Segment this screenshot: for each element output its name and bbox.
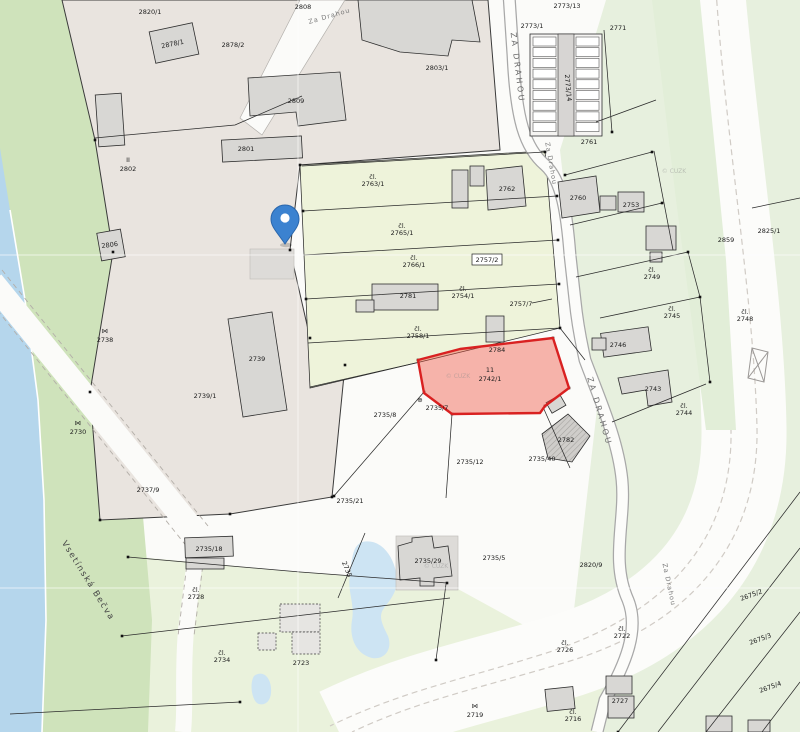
building [221, 136, 302, 162]
parcel-label: 2719 [467, 711, 484, 719]
parcel-label: 2773/13 [553, 2, 580, 10]
garage-cell [576, 123, 599, 132]
parcel-label: 2735/5 [483, 554, 506, 562]
parcel-label: 2784 [489, 346, 506, 354]
building-dashed [292, 632, 320, 654]
garage-cell [533, 37, 556, 46]
building [650, 252, 662, 262]
parcel-label: 2738 [97, 336, 114, 344]
parcel-label: II [126, 156, 130, 164]
parcel-label: 2757/7 [510, 300, 533, 308]
parcel-label: 2739/1 [194, 392, 217, 400]
parcel-label: 2730 [70, 428, 87, 436]
parcel-label: 2739 [249, 355, 266, 363]
building [592, 338, 606, 350]
cadastral-map-canvas[interactable]: 11 2742/1 2820/12878/12878/2280828092803… [0, 0, 800, 732]
parcel-label: 2762 [499, 185, 516, 193]
garage-cell [576, 48, 599, 57]
building-dashed [258, 633, 276, 650]
garage-cell [533, 69, 556, 78]
parcel-label: 2781 [400, 292, 417, 300]
parcel-label: 2746 [610, 341, 627, 349]
parcel-label: ⋈ [102, 327, 109, 335]
parcel-label: 2859 [718, 236, 735, 244]
parcel-label: 2820/1 [139, 8, 162, 16]
parcel-label: ⋈ [75, 419, 82, 427]
building-dashed [280, 604, 320, 632]
garage-cell [533, 101, 556, 110]
building [356, 300, 374, 312]
parcel-label: 2825/1 [758, 227, 781, 235]
building [600, 196, 616, 210]
garage-cell [576, 101, 599, 110]
parcel-label: 2782 [558, 436, 575, 444]
parcel-label: 2735/21 [336, 497, 363, 505]
building [95, 93, 125, 147]
parcel-label: 2735/7 [426, 404, 449, 412]
parcel-label: 2803/1 [426, 64, 449, 72]
building [486, 316, 504, 342]
parcel-label: 2809 [288, 97, 305, 105]
parcel-label: 2808 [295, 3, 312, 11]
parcel-label: 2878/2 [222, 41, 245, 49]
parcel-label: 2735/40 [528, 455, 555, 463]
parcel-label: 2723 [293, 659, 310, 667]
parcel-label: 2727 [612, 697, 629, 705]
parcel-label: 2735/8 [374, 411, 397, 419]
watermark: © ČÚZK [424, 563, 449, 570]
garage-cell [533, 123, 556, 132]
garage-cell [533, 80, 556, 89]
building [606, 676, 632, 694]
watermark: © ČÚZK [662, 168, 687, 175]
building [470, 166, 484, 186]
parcel-label: 2761 [581, 138, 598, 146]
garage-cell [533, 91, 556, 100]
garage-cell [533, 48, 556, 57]
parcel-label: 2801 [238, 145, 255, 153]
building [250, 249, 294, 279]
parcel-label: 2802 [120, 165, 137, 173]
parcel-label: 2757/2 [476, 256, 499, 264]
parcel-label: 2735/18 [195, 545, 222, 553]
parcel-label: 2771 [610, 24, 627, 32]
parcel-label: ⊕ [417, 396, 422, 404]
parcel-label: 2773/1 [521, 22, 544, 30]
garage-cell [576, 91, 599, 100]
garage-cell [533, 58, 556, 67]
building [706, 716, 732, 732]
parcel-label: ⋈ [472, 702, 479, 710]
garage-cell [576, 69, 599, 78]
parcel-label: 2743 [645, 385, 662, 393]
garage-cell [576, 112, 599, 121]
garage-cell [576, 37, 599, 46]
watermark: © ČÚZK [446, 373, 471, 380]
parcel-label: 2820/9 [580, 561, 603, 569]
parcel-label: 2735/12 [456, 458, 483, 466]
pin-center-dot [280, 213, 289, 222]
garage-cell [533, 112, 556, 121]
highlighted-parcel-number: 2742/1 [479, 375, 502, 383]
garage-cell [576, 58, 599, 67]
parcel-label: 2760 [570, 194, 587, 202]
building [646, 226, 676, 250]
parcel-label: 2737/9 [137, 486, 160, 494]
highlighted-parcel-house-no: 11 [486, 366, 494, 374]
parcel-label: 2753 [623, 201, 640, 209]
garage-cell [576, 80, 599, 89]
